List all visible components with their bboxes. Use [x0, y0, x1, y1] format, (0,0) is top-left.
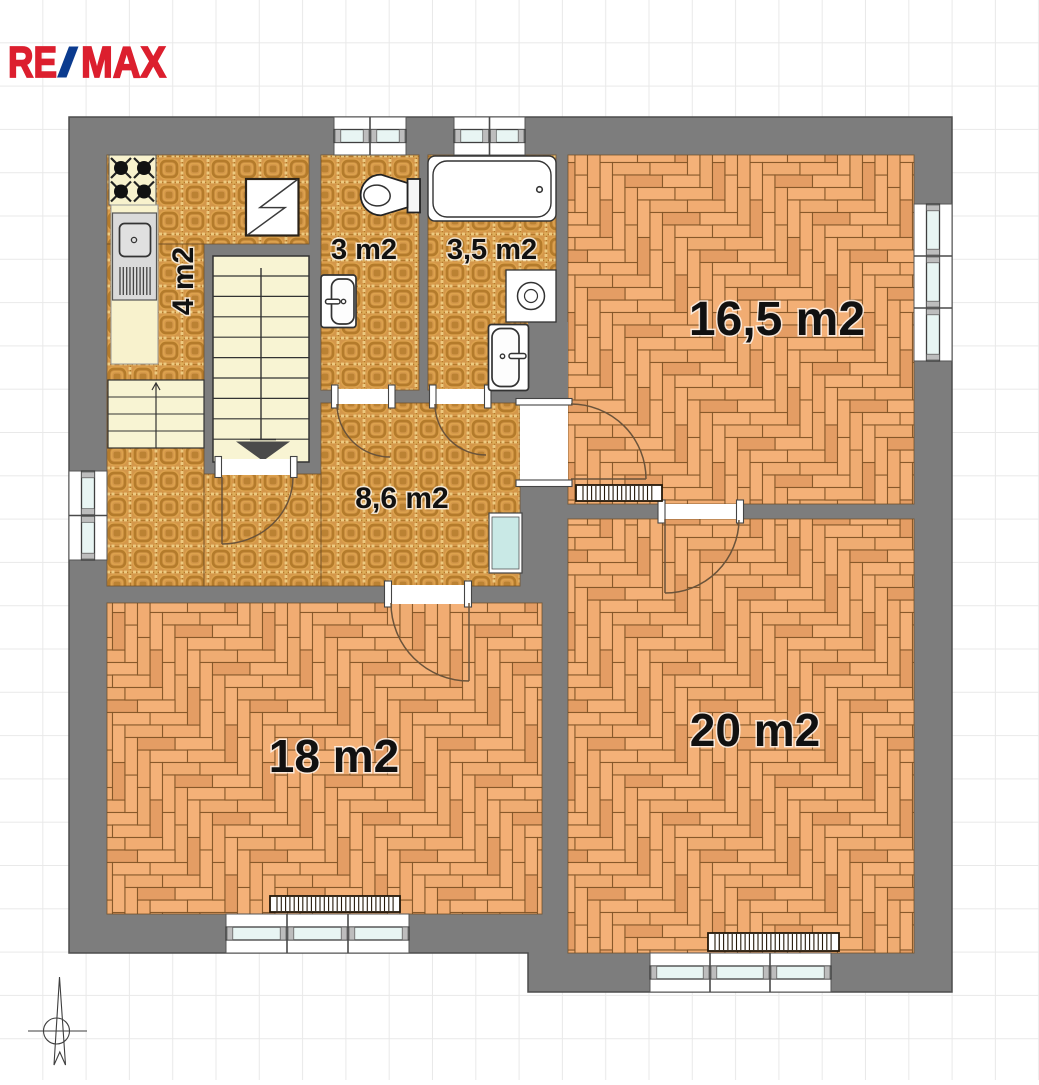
- svg-text:20 m2: 20 m2: [690, 704, 820, 756]
- svg-text:RE: RE: [8, 38, 57, 87]
- svg-text:18 m2: 18 m2: [269, 730, 399, 782]
- svg-text:16,5 m2: 16,5 m2: [689, 293, 865, 346]
- svg-text:8,6 m2: 8,6 m2: [355, 482, 448, 515]
- svg-text:MAX: MAX: [81, 38, 166, 87]
- svg-text:3,5 m2: 3,5 m2: [447, 234, 537, 266]
- svg-text:4 m2: 4 m2: [167, 247, 200, 315]
- svg-text:3 m2: 3 m2: [331, 234, 397, 266]
